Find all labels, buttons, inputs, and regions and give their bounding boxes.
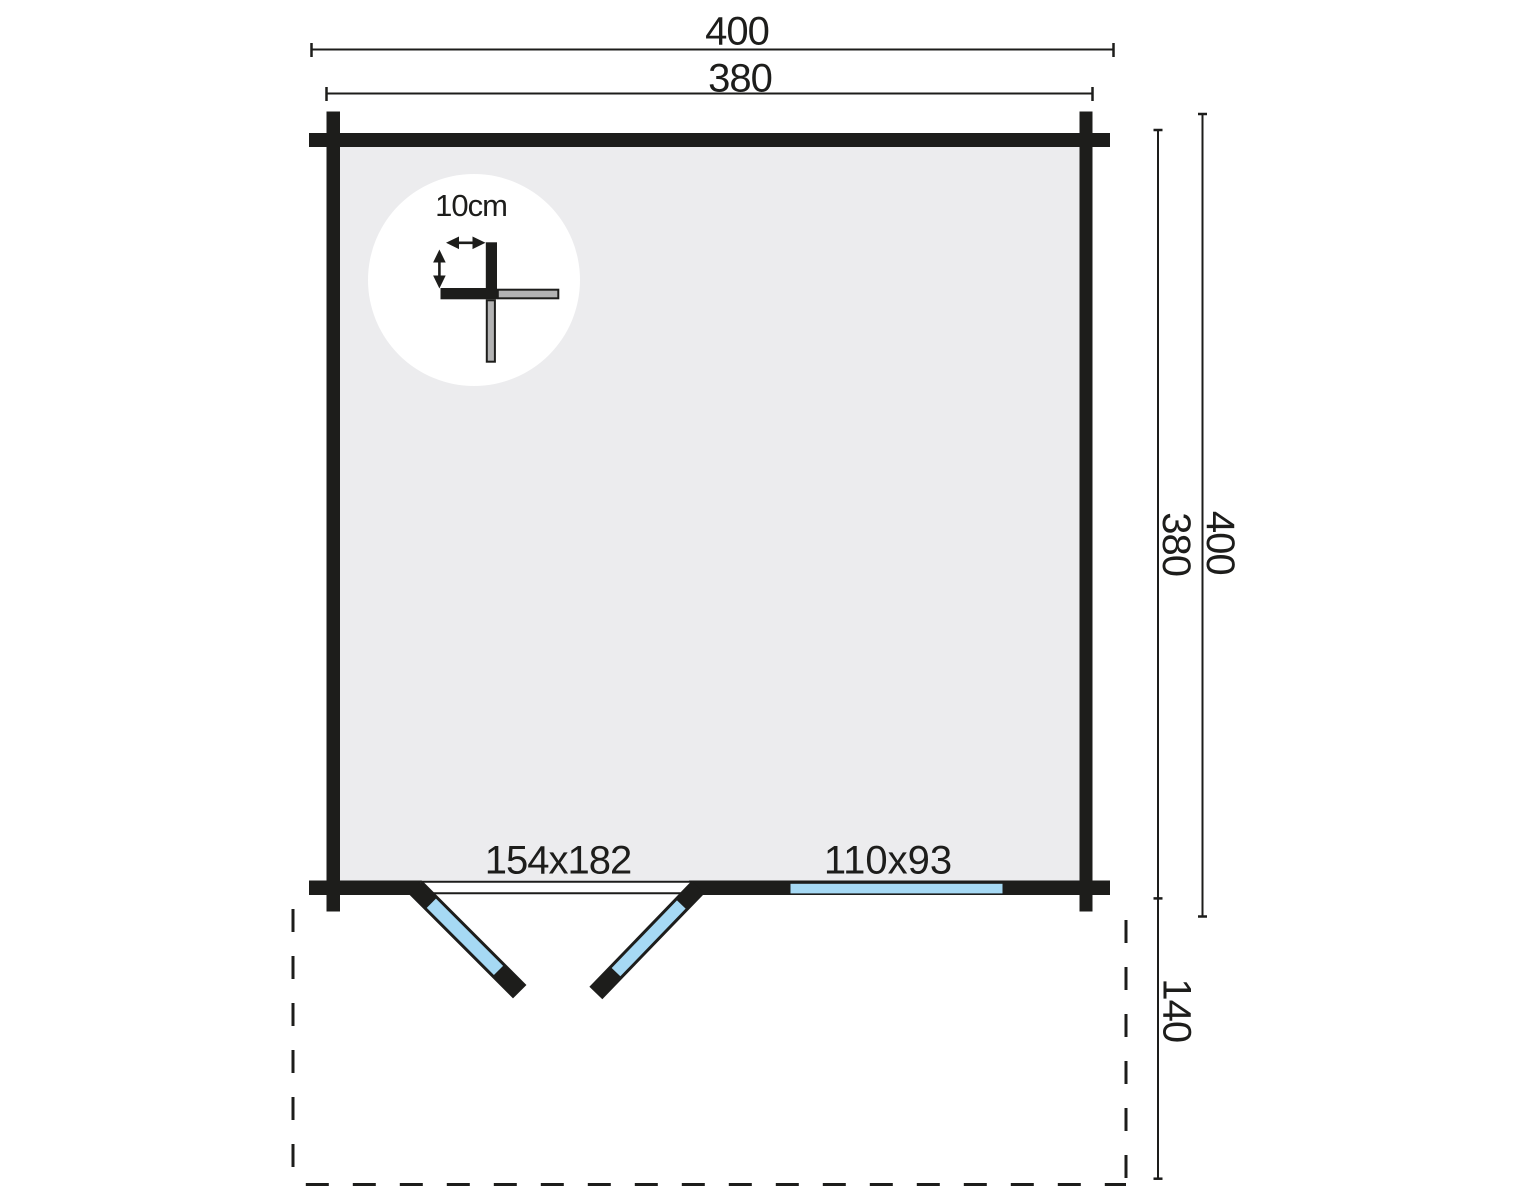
svg-text:10cm: 10cm	[435, 188, 507, 223]
svg-text:140: 140	[1155, 978, 1199, 1042]
svg-text:154x182: 154x182	[485, 839, 631, 883]
svg-text:380: 380	[1154, 512, 1198, 576]
svg-text:400: 400	[705, 10, 769, 54]
svg-text:110x93: 110x93	[824, 839, 952, 883]
svg-text:400: 400	[1198, 511, 1242, 575]
svg-text:380: 380	[708, 57, 772, 101]
